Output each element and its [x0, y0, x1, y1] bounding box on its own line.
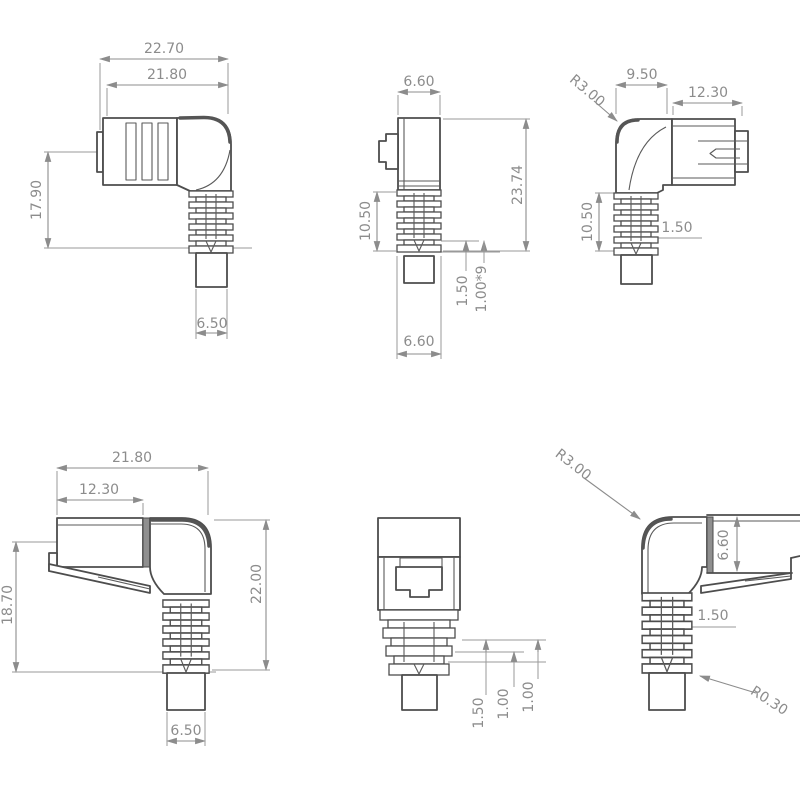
dim-bottom-width: 6.60 — [403, 334, 434, 350]
dim-rib-space: 1.50 — [455, 275, 471, 306]
dim-body-width: 21.80 — [147, 67, 187, 83]
dim-overall-height: 22.00 — [249, 564, 265, 604]
latch-lever — [701, 573, 791, 593]
dim-body-width: 21.80 — [112, 450, 152, 466]
connector-latch-side-geometry — [49, 518, 211, 710]
view-top-right-side: R3.00 9.50 12.30 10.50 1.50 — [566, 67, 748, 284]
dim-height: 17.90 — [29, 180, 45, 220]
plug-boot-junction — [143, 518, 150, 567]
view-bottom-left-dimensions: 21.80 12.30 18.70 22.00 6.50 — [0, 450, 270, 746]
strain-relief — [163, 600, 209, 673]
view-bottom-right-side: R3.00 1.50 R0.30 6.60 — [552, 446, 800, 719]
connector-side-right-geometry — [614, 119, 748, 284]
cable-stub — [404, 256, 434, 283]
dim-overall-height: 23.74 — [510, 165, 526, 205]
view-bottom-middle-front: 1.50 1.00 1.00 — [378, 518, 546, 729]
plug-body — [672, 119, 735, 185]
plug-body — [103, 118, 177, 185]
view-top-middle-dimensions: 6.60 23.74 10.50 1.50 1.00*9 6.60 — [358, 74, 530, 359]
cable-stub — [196, 253, 227, 287]
dim-plug-length: 12.30 — [79, 482, 119, 498]
boot-elbow — [150, 518, 211, 594]
latch-lever — [49, 564, 150, 593]
dim-rib-width: 1.50 — [661, 220, 692, 236]
connector-front-geometry — [378, 518, 460, 710]
dim-bend-radius: R3.00 — [552, 446, 594, 484]
dim-rib-radius: R0.30 — [747, 683, 790, 719]
cable-stub — [167, 673, 205, 710]
dim-rib-b: 1.00 — [521, 681, 537, 712]
cable-stub — [621, 255, 652, 284]
dim-rib-a: 1.00 — [496, 688, 512, 719]
boot-elbow — [177, 117, 231, 191]
strain-relief — [642, 593, 692, 673]
strain-relief — [189, 191, 233, 253]
dim-bend-radius: R3.00 — [566, 72, 608, 111]
connector-profile-geometry — [379, 118, 441, 283]
cable-stub — [402, 675, 437, 710]
view-top-left-side: 22.70 21.80 17.90 6.50 — [29, 41, 252, 339]
connector-side-left-geometry — [97, 117, 233, 287]
dim-rib-width: 1.50 — [697, 608, 728, 624]
dim-cable-width: 6.50 — [170, 723, 201, 739]
dim-relief-height: 10.50 — [358, 201, 374, 241]
boot-elbow — [616, 119, 672, 193]
dim-boot-width: 9.50 — [626, 67, 657, 83]
plug-body — [378, 518, 460, 557]
dim-plug-length: 12.30 — [688, 85, 728, 101]
boot-elbow — [642, 517, 707, 594]
latch-tab — [379, 134, 398, 169]
dim-plug-height: 6.60 — [716, 529, 732, 560]
strain-relief — [614, 193, 658, 255]
view-bottom-middle-dimensions: 1.50 1.00 1.00 — [448, 640, 546, 729]
dim-overall-width: 22.70 — [144, 41, 184, 57]
dim-cable-width: 6.50 — [196, 316, 227, 332]
dim-rib-space: 1.50 — [471, 697, 487, 728]
dim-relief-height: 10.50 — [580, 202, 596, 242]
drawing-canvas: 22.70 21.80 17.90 6.50 — [0, 0, 800, 800]
dim-top-width: 6.60 — [403, 74, 434, 90]
cable-stub — [649, 673, 685, 710]
strain-relief — [380, 610, 458, 675]
strain-relief — [397, 190, 441, 252]
dim-height: 18.70 — [0, 585, 16, 625]
view-bottom-left-side: 21.80 12.30 18.70 22.00 6.50 — [0, 450, 270, 746]
plug-nose — [735, 131, 748, 172]
dim-rib-pitch: 1.00*9 — [474, 265, 490, 312]
view-top-middle-profile: 6.60 23.74 10.50 1.50 1.00*9 6.60 — [358, 74, 530, 359]
plug-boot-junction — [707, 517, 713, 573]
